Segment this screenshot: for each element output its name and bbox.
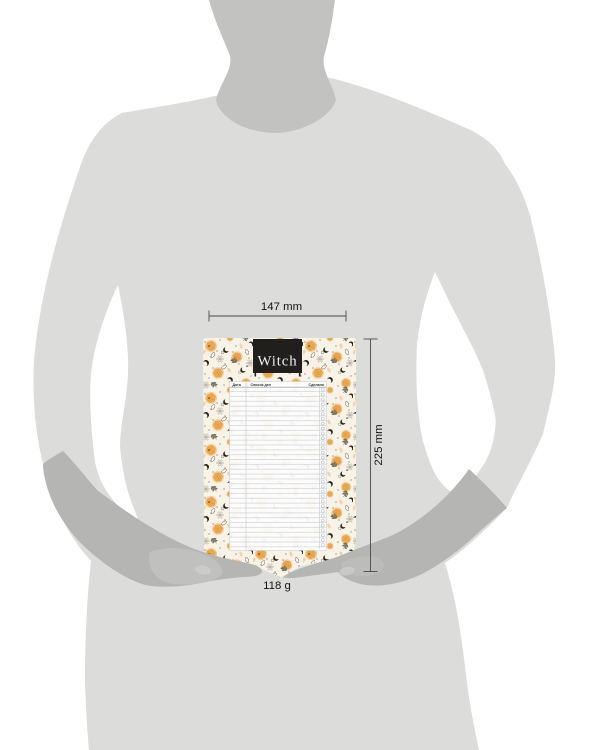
- svg-text:147 mm: 147 mm: [261, 301, 302, 313]
- svg-text:Дата: Дата: [233, 383, 242, 387]
- svg-text:Witch: Witch: [257, 354, 297, 370]
- svg-text:118 g: 118 g: [263, 580, 291, 592]
- svg-text:Сделано: Сделано: [308, 383, 324, 387]
- svg-text:Список дел: Список дел: [251, 383, 272, 387]
- svg-text:225 mm: 225 mm: [373, 424, 385, 465]
